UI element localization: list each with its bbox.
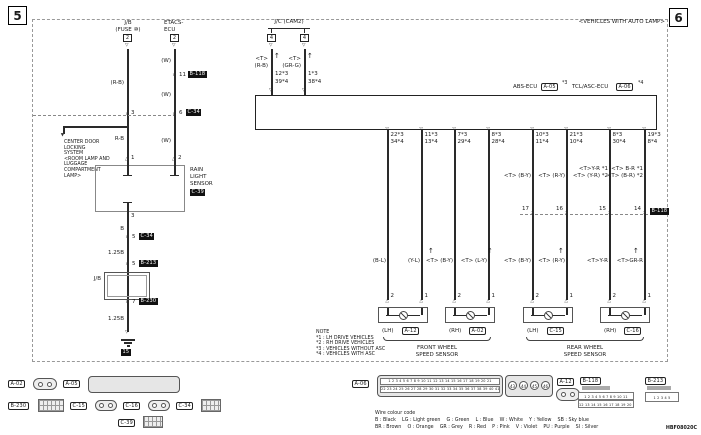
ecu-pin-number: 8*4 bbox=[648, 139, 658, 146]
junction-tick: × bbox=[125, 263, 129, 268]
jb-fuse-label: (FUSE ⑩) bbox=[115, 27, 140, 34]
terminal-icon: ▽ bbox=[125, 44, 128, 49]
rain-sensor-inner-bar bbox=[170, 175, 179, 176]
rain-sensor-name: LIGHT bbox=[190, 174, 206, 181]
front-sensor-group-label: FRONT WHEEL bbox=[417, 345, 457, 352]
wire-color-label: <T>Y-R *1 bbox=[579, 166, 608, 173]
connector-label-a02: A-02 bbox=[8, 380, 25, 388]
wire-color-label: <T> (Y-R) *2 bbox=[573, 173, 608, 180]
footnote-mark: *4 bbox=[638, 81, 643, 87]
terminal-icon: △ bbox=[486, 300, 489, 305]
direction-arrow-icon: ↑ bbox=[428, 248, 434, 255]
junction-tick: × bbox=[565, 212, 569, 217]
junction-pin-number: 7 bbox=[132, 299, 136, 306]
junction-tick: × bbox=[643, 212, 647, 217]
ground-icon bbox=[121, 339, 135, 341]
terminal-icon: ▽ bbox=[125, 331, 128, 336]
sensor-coil-icon bbox=[399, 311, 408, 320]
a06-extra-pin: 46 bbox=[541, 381, 550, 390]
junction-pin-number: 15 bbox=[599, 206, 606, 213]
a06-pin-row: 22 23 24 25 26 27 28 29 30 31 32 33 34 3… bbox=[380, 386, 500, 393]
terminal-icon: ▽ bbox=[564, 128, 567, 133]
b213-part-bar bbox=[647, 386, 671, 390]
connector-drawing-a02 bbox=[33, 378, 57, 390]
sensor-pin-number: 1 bbox=[570, 293, 574, 300]
ecu-pin-number: 12*3 bbox=[275, 71, 288, 78]
connector-label-c16: C-16 bbox=[123, 402, 140, 410]
junction-pin-number: 5 bbox=[132, 261, 136, 268]
ecu-pin-number: 11*3 bbox=[425, 132, 438, 139]
ecu-pin-number: 21*3 bbox=[570, 132, 583, 139]
connector-label-c39: C-39 bbox=[190, 189, 205, 196]
terminal-icon: △ bbox=[564, 300, 567, 305]
sensor-coil-icon bbox=[466, 311, 475, 320]
rain-sensor-box bbox=[95, 165, 185, 212]
wire-color-label: <T> (B-Y) bbox=[504, 173, 531, 180]
terminal-icon: ▽ bbox=[172, 44, 175, 49]
junction-pin-number: 6 bbox=[179, 110, 183, 117]
rain-sensor-name: SENSOR bbox=[190, 181, 213, 188]
junction-pin-number: 16 bbox=[556, 206, 563, 213]
terminal-icon: △ bbox=[419, 300, 422, 305]
jc-bracket-stub bbox=[304, 28, 305, 33]
terminal-icon: ▽ bbox=[607, 128, 610, 133]
junction-tick: × bbox=[125, 301, 129, 306]
wire-color-label: (R-B) bbox=[111, 80, 124, 87]
junction-tick: × bbox=[125, 236, 129, 241]
terminal-icon: ▽ bbox=[269, 44, 272, 49]
connector-label-b118: B-118 bbox=[650, 208, 669, 215]
rain-sensor-inner-stub bbox=[127, 165, 129, 175]
doc-code: HBF08020C bbox=[666, 426, 697, 432]
connector-label-b213: B-213 bbox=[645, 377, 666, 385]
sensor-connector-label: A-12 bbox=[402, 327, 419, 335]
sensor-side-label: (LH) bbox=[382, 328, 394, 335]
wire-color-label: <T> (L-Y) bbox=[461, 258, 487, 265]
connector-drawing-c39 bbox=[143, 416, 163, 428]
connector-label-c34: C-34 bbox=[176, 402, 193, 410]
connector-label-a12: A-12 bbox=[557, 378, 574, 386]
sensor-side-label: (RH) bbox=[449, 328, 461, 335]
junction-pin-number: 17 bbox=[522, 206, 529, 213]
sensor-pin-number: 2 bbox=[536, 293, 540, 300]
connector-label-a06: A-06 bbox=[352, 380, 369, 388]
terminal-icon: △ bbox=[452, 300, 455, 305]
sensor-connector-label: A-02 bbox=[469, 327, 486, 335]
ecu-pin-number: 13*4 bbox=[425, 139, 438, 146]
etacs-wire bbox=[174, 49, 176, 165]
direction-arrow-icon: ↑ bbox=[633, 248, 639, 255]
ecu-pin-number: 8*3 bbox=[492, 132, 502, 139]
note-item: *4 : VEHICLES WITH ASC bbox=[316, 352, 385, 358]
jb-connector-box: 2 bbox=[123, 34, 132, 42]
connector-label-b118: B-118 bbox=[580, 377, 601, 385]
ground-icon bbox=[127, 345, 130, 347]
terminal-icon: ▽ bbox=[642, 128, 645, 133]
connector-drawing-c16 bbox=[148, 400, 170, 411]
junction-tick: × bbox=[172, 74, 176, 79]
rain-sensor-inner-bar bbox=[123, 202, 132, 203]
connector-label-c15: C-15 bbox=[70, 402, 87, 410]
a06-extra-pin: 44 bbox=[519, 381, 528, 390]
speed-sensor-wire bbox=[387, 130, 389, 300]
connector-label-c34: C-34 bbox=[186, 109, 201, 116]
terminal-icon: △ bbox=[607, 300, 610, 305]
terminal-icon: ▽ bbox=[486, 128, 489, 133]
wire-size-label: 1.25B bbox=[108, 316, 124, 323]
b118-pin-row: 1 2 3 4 5 6 7 8 9 10 11 bbox=[578, 392, 634, 400]
jb-junction-pin: 3 bbox=[131, 110, 135, 117]
a06-extra-pin: 45 bbox=[530, 381, 539, 390]
tag-label: <T> bbox=[255, 56, 268, 63]
junction-tick: × bbox=[172, 113, 176, 118]
connector-drawing-c15 bbox=[95, 400, 117, 411]
front-sensor-brace bbox=[383, 337, 491, 341]
sensor-coil-icon bbox=[621, 311, 630, 320]
legend-line: B : Black LG : Light green G : Green L :… bbox=[375, 418, 589, 424]
ground-id-label: 15 bbox=[121, 349, 131, 356]
sensor-pin-number: 1 bbox=[648, 293, 652, 300]
footnote-mark: *3 bbox=[562, 81, 567, 87]
speed-sensor-wire bbox=[421, 130, 423, 300]
wire-color-label: B bbox=[120, 226, 124, 233]
ecu-pin-number: 19*3 bbox=[648, 132, 661, 139]
wire-color-label: (Y-L) bbox=[408, 258, 420, 265]
direction-arrow-icon: ↑ bbox=[487, 248, 493, 255]
connector-drawing-b230 bbox=[38, 399, 64, 412]
connector-pin bbox=[152, 403, 157, 408]
connector-pin bbox=[108, 403, 113, 408]
junction-pin-number: 14 bbox=[634, 206, 641, 213]
jb-wire bbox=[127, 49, 129, 165]
ecu-pin-number: 28*4 bbox=[492, 139, 505, 146]
sensor-connector-label: C-15 bbox=[547, 327, 564, 335]
jc-bracket-stub bbox=[271, 28, 272, 33]
abs-ecu-label: ABS-ECU bbox=[513, 84, 537, 91]
terminal-icon: △ bbox=[125, 158, 128, 163]
ecu-pin-number: 1*3 bbox=[308, 71, 318, 78]
wire-color-label: (W) bbox=[161, 92, 171, 99]
connector-label-b213: B-213 bbox=[139, 260, 158, 267]
b118-part-bar bbox=[582, 386, 610, 390]
arrow-down-icon: ▼ bbox=[61, 134, 64, 139]
ecu-pin-number: 7*3 bbox=[458, 132, 468, 139]
rain-sensor-pin3: 3 bbox=[131, 213, 135, 220]
ecu-pin-number: 38*4 bbox=[308, 79, 321, 86]
connector-label-b230: B-230 bbox=[8, 402, 29, 410]
wire-color-label: R-B bbox=[115, 136, 124, 143]
rear-sensor-brace bbox=[526, 337, 644, 341]
sensor-side-label: (LH) bbox=[527, 328, 539, 335]
wire-size-label: 1.25B bbox=[108, 250, 124, 257]
wire-color-label: <T> (B-R) *2 bbox=[607, 173, 643, 180]
ecu-pin-number: 34*4 bbox=[391, 139, 404, 146]
terminal-icon: ▽ bbox=[302, 89, 305, 94]
b118-pin-row: 12 13 14 15 16 17 18 19 20 21 22 bbox=[578, 400, 634, 408]
terminal-icon: △ bbox=[385, 300, 388, 305]
junction-block-box bbox=[104, 272, 150, 300]
ecu-pin-number: 10*4 bbox=[570, 139, 583, 146]
connector-label-a06: A-06 bbox=[616, 83, 633, 91]
terminal-icon: △ bbox=[172, 158, 175, 163]
connector-drawing-a12 bbox=[556, 388, 580, 401]
legend-line: BR : Brown O : Orange GR : Grey R : Red … bbox=[375, 425, 598, 431]
terminal-icon: ▽ bbox=[530, 128, 533, 133]
ecu-pin-number: 30*4 bbox=[613, 139, 626, 146]
auto-lamp-note: <VEHICLES WITH AUTO LAMP> bbox=[579, 19, 665, 26]
junction-pin-number: 5 bbox=[132, 234, 136, 241]
wire-color-label: <T>Y-R bbox=[587, 258, 608, 265]
terminal-icon: △ bbox=[642, 300, 645, 305]
terminal-icon: ▽ bbox=[452, 128, 455, 133]
rear-sensor-group-label: SPEED SENSOR bbox=[564, 352, 606, 359]
junction-tick: × bbox=[125, 113, 129, 118]
rain-sensor-inner-stub bbox=[127, 202, 129, 212]
connector-label-a05: A-05 bbox=[63, 380, 80, 388]
jc-connector-box: 4 bbox=[267, 34, 276, 42]
connector-label-c34: C-34 bbox=[139, 233, 154, 240]
connector-pin bbox=[38, 382, 43, 387]
direction-arrow-icon: ↑ bbox=[558, 248, 564, 255]
sensor-coil-icon bbox=[544, 311, 553, 320]
wire-color-label: (B-L) bbox=[373, 258, 386, 265]
jc-connector-box: 4 bbox=[300, 34, 309, 42]
connector-pin bbox=[161, 403, 166, 408]
rain-sensor-inner-bar bbox=[123, 175, 132, 176]
sensor-connector-label: C-16 bbox=[624, 327, 641, 335]
rain-sensor-pin2: 2 bbox=[178, 155, 182, 162]
direction-arrow-icon: ↑ bbox=[274, 53, 280, 60]
wire-color-label: (R-B) bbox=[255, 63, 268, 70]
junction-block-label: J/B bbox=[94, 276, 101, 283]
rear-sensor-group-label: REAR WHEEL bbox=[567, 345, 603, 352]
etacs-title2: ECU bbox=[164, 27, 175, 34]
terminal-icon: ▽ bbox=[419, 128, 422, 133]
sensor-side-label: (RH) bbox=[604, 328, 616, 335]
terminal-icon: △ bbox=[530, 300, 533, 305]
connector-pin bbox=[561, 392, 566, 397]
wire-color-label: <T> B-R *1 bbox=[611, 166, 643, 173]
wire-color-label: <T> (R-Y) bbox=[538, 173, 565, 180]
wire-color-label: (GR-G) bbox=[282, 63, 301, 70]
ecu-pin-number: 29*4 bbox=[458, 139, 471, 146]
legend-title: Wire colour code bbox=[375, 411, 415, 417]
connector-label-b230: B-230 bbox=[139, 298, 158, 305]
junction-tick: × bbox=[531, 212, 535, 217]
speed-sensor-wire bbox=[488, 130, 490, 300]
wire-color-label: (W) bbox=[161, 138, 171, 145]
abs-ecu-box bbox=[255, 95, 657, 130]
ecu-pin-number: 8*3 bbox=[613, 132, 623, 139]
page-number-right: 6 bbox=[669, 8, 688, 27]
wire-color-label: <T> (B-Y) bbox=[504, 258, 531, 265]
wire-color-label: <T> (R-Y) bbox=[538, 258, 565, 265]
terminal-icon: ▽ bbox=[302, 44, 305, 49]
connector-drawing-c34 bbox=[201, 399, 221, 412]
terminal-icon: ▽ bbox=[269, 89, 272, 94]
sensor-pin-number: 2 bbox=[391, 293, 395, 300]
connector-drawing-a05 bbox=[88, 376, 180, 393]
note-block: NOTE *1 : LH DRIVE VEHICLES *2 : RH DRIV… bbox=[316, 330, 385, 358]
terminal-icon: ▽ bbox=[385, 128, 388, 133]
front-sensor-group-label: SPEED SENSOR bbox=[416, 352, 458, 359]
a06-pin-row: 1 2 3 4 5 6 7 8 9 10 11 12 13 14 15 16 1… bbox=[380, 378, 500, 385]
rain-sensor-inner-stub bbox=[174, 165, 176, 175]
connector-label-c39: C-39 bbox=[118, 419, 135, 427]
tag-label: <T> bbox=[288, 56, 301, 63]
junction-tick: × bbox=[608, 212, 612, 217]
wire-color-label: <T>GR-R bbox=[617, 258, 643, 265]
etacs-connector-box: 2 bbox=[170, 34, 179, 42]
rain-sensor-pin1: 1 bbox=[131, 155, 135, 162]
b213-pin-row: 1 2 3 4 5 bbox=[645, 392, 679, 402]
ground-icon bbox=[124, 342, 132, 344]
branch-wire bbox=[63, 126, 128, 128]
wire-color-label: <T> (B-Y) bbox=[426, 258, 453, 265]
page-number-left: 5 bbox=[8, 6, 27, 25]
wire-color-label: (W) bbox=[161, 58, 171, 65]
c34-crossing-line bbox=[33, 115, 176, 116]
jc-title: J/C (CAM2) bbox=[274, 19, 303, 26]
tcl-asc-ecu-label: TCL/ASC-ECU bbox=[572, 84, 608, 91]
sensor-pin-number: 1 bbox=[425, 293, 429, 300]
junction-pin-number: 11 bbox=[179, 72, 186, 79]
connector-pin bbox=[99, 403, 104, 408]
sensor-pin-number: 2 bbox=[458, 293, 462, 300]
a06-extra-pin: 43 bbox=[508, 381, 517, 390]
connector-pin bbox=[47, 382, 52, 387]
ecu-pin-number: 10*3 bbox=[536, 132, 549, 139]
connector-label-a05: A-05 bbox=[541, 83, 558, 91]
connector-label-b118: B-118 bbox=[188, 71, 207, 78]
ecu-pin-number: 39*4 bbox=[275, 79, 288, 86]
speed-sensor-wire bbox=[454, 130, 456, 300]
wiring-diagram-page: 5 6 <VEHICLES WITH AUTO LAMP> J/B (FUSE … bbox=[0, 0, 701, 435]
connector-pin bbox=[570, 392, 575, 397]
ecu-pin-number: 11*4 bbox=[536, 139, 549, 146]
ecu-pin-number: 22*3 bbox=[391, 132, 404, 139]
rain-sensor-name: RAIN bbox=[190, 167, 203, 174]
sensor-pin-number: 1 bbox=[492, 293, 496, 300]
sensor-pin-number: 2 bbox=[613, 293, 617, 300]
direction-arrow-icon: ↑ bbox=[307, 53, 313, 60]
